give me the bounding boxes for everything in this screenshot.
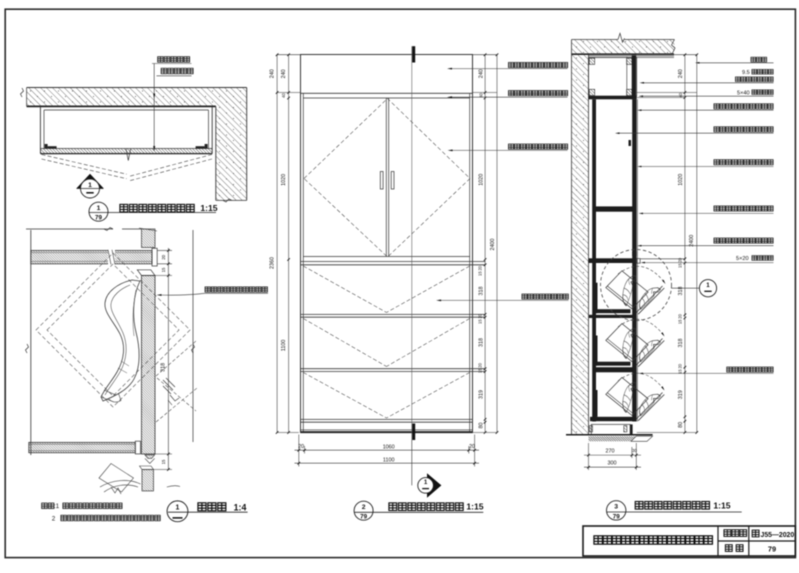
svg-text:5×40: 5×40	[737, 90, 750, 96]
svg-text:240: 240	[478, 69, 484, 78]
svg-text:80: 80	[678, 422, 684, 428]
svg-text:1: 1	[88, 182, 92, 189]
svg-text:1:15: 1:15	[713, 500, 730, 510]
svg-text:1020: 1020	[281, 174, 287, 186]
svg-text:318: 318	[478, 338, 484, 347]
svg-text:15: 15	[678, 319, 683, 324]
svg-text:1100: 1100	[383, 457, 395, 463]
svg-text:2400: 2400	[490, 239, 496, 251]
svg-text:79: 79	[768, 545, 776, 554]
svg-text:270: 270	[606, 448, 615, 454]
svg-text:15: 15	[478, 368, 483, 373]
svg-text::1: :1	[54, 503, 60, 510]
svg-text:40: 40	[281, 93, 286, 98]
svg-text:240: 240	[281, 69, 287, 78]
svg-text:20: 20	[678, 257, 683, 262]
svg-text:1:15: 1:15	[200, 203, 217, 213]
svg-text:300: 300	[608, 460, 617, 466]
svg-text:2360: 2360	[270, 257, 276, 269]
svg-text:20: 20	[298, 444, 304, 450]
svg-text:1: 1	[176, 504, 180, 511]
svg-text:20: 20	[478, 313, 483, 318]
svg-text:20: 20	[478, 265, 483, 270]
svg-text:1060: 1060	[383, 444, 395, 450]
svg-text:9.5: 9.5	[742, 70, 750, 76]
svg-text:1:15: 1:15	[466, 502, 483, 512]
svg-text:15: 15	[678, 263, 683, 268]
svg-text:318: 318	[478, 287, 484, 296]
svg-text:40: 40	[678, 92, 683, 97]
svg-text:2: 2	[362, 504, 366, 511]
svg-text:15: 15	[478, 271, 483, 276]
svg-text:1100: 1100	[281, 340, 287, 352]
svg-text:318: 318	[678, 287, 684, 296]
svg-text:240: 240	[269, 69, 275, 78]
svg-text:20: 20	[469, 444, 475, 450]
svg-text:319: 319	[478, 390, 484, 399]
svg-text:30: 30	[632, 448, 637, 453]
svg-text:2400: 2400	[689, 235, 695, 247]
svg-text:1:4: 1:4	[234, 502, 247, 512]
svg-text:15: 15	[478, 319, 483, 324]
svg-text:20: 20	[678, 313, 683, 318]
svg-text:319: 319	[678, 390, 684, 399]
svg-text:1020: 1020	[678, 174, 684, 186]
svg-text:20: 20	[161, 254, 166, 259]
svg-text:5×20: 5×20	[736, 256, 749, 262]
svg-text:40: 40	[478, 92, 483, 97]
svg-text:20: 20	[678, 363, 683, 368]
svg-text:240: 240	[678, 69, 684, 78]
svg-text:79: 79	[360, 514, 367, 521]
svg-text:1: 1	[706, 282, 710, 289]
svg-text:J55—2020: J55—2020	[761, 532, 795, 539]
svg-text:1020: 1020	[478, 174, 484, 186]
svg-text:1: 1	[424, 479, 428, 486]
svg-text:3: 3	[614, 504, 618, 511]
svg-text:318: 318	[161, 363, 167, 372]
svg-text:20: 20	[478, 362, 483, 367]
svg-text:79: 79	[613, 513, 620, 520]
svg-text:15: 15	[161, 267, 166, 272]
svg-text:318: 318	[678, 339, 684, 348]
svg-text:15: 15	[161, 459, 166, 464]
svg-text:80: 80	[478, 423, 484, 429]
svg-text:1: 1	[97, 205, 101, 212]
svg-text:79: 79	[95, 215, 102, 222]
svg-text:2: 2	[52, 515, 56, 522]
